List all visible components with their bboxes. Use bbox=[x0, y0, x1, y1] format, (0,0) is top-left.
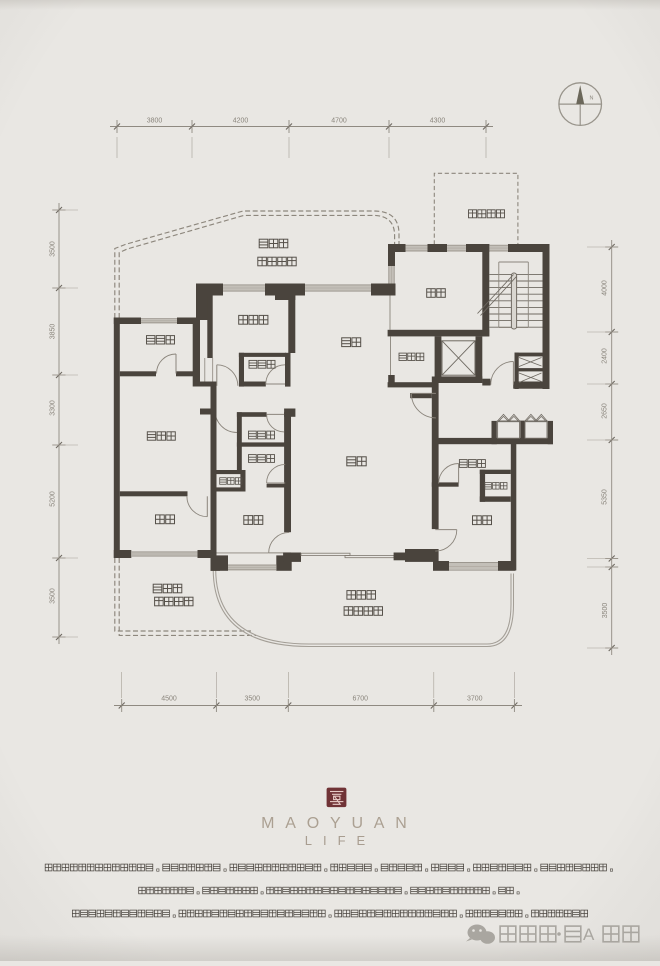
svg-text:4000: 4000 bbox=[602, 280, 609, 296]
svg-text:4300: 4300 bbox=[430, 118, 446, 125]
svg-text:3700: 3700 bbox=[467, 696, 483, 703]
svg-text:3300: 3300 bbox=[49, 400, 56, 416]
svg-text:4200: 4200 bbox=[233, 118, 249, 125]
svg-text:5200: 5200 bbox=[49, 491, 56, 507]
svg-text:2400: 2400 bbox=[602, 348, 609, 364]
svg-text:3500: 3500 bbox=[602, 603, 609, 619]
svg-text:3800: 3800 bbox=[147, 118, 163, 125]
svg-text:3850: 3850 bbox=[49, 324, 56, 340]
svg-text:6700: 6700 bbox=[353, 696, 369, 703]
svg-text:4500: 4500 bbox=[161, 696, 177, 703]
svg-text:4700: 4700 bbox=[331, 118, 347, 125]
svg-text:A: A bbox=[583, 925, 595, 944]
svg-text:MAOYUAN: MAOYUAN bbox=[261, 815, 418, 832]
svg-text:2650: 2650 bbox=[602, 403, 609, 419]
svg-text:LIFE: LIFE bbox=[305, 833, 376, 848]
svg-text:3500: 3500 bbox=[49, 241, 56, 257]
svg-text:5350: 5350 bbox=[602, 489, 609, 505]
svg-text:3500: 3500 bbox=[50, 588, 57, 604]
svg-text:3500: 3500 bbox=[245, 696, 261, 703]
svg-text:N: N bbox=[590, 96, 594, 102]
